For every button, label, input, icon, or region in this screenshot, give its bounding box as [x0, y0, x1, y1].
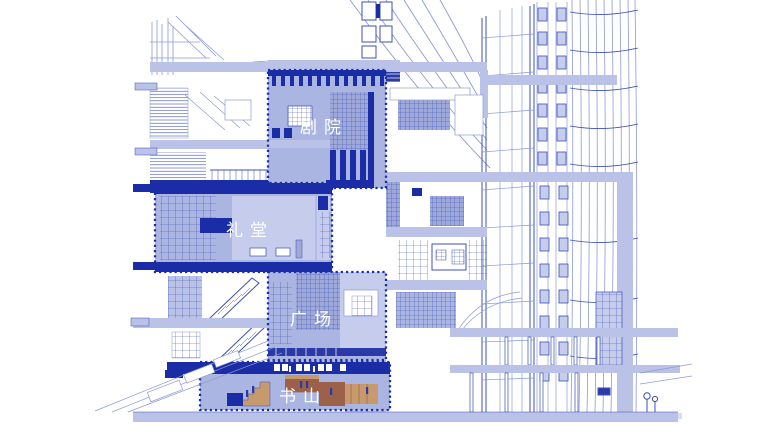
dark-service-box	[227, 393, 243, 406]
label-book-mountain: 书山	[279, 387, 327, 407]
label-plaza: 广场	[290, 310, 338, 330]
block-theater: 剧院	[268, 60, 400, 188]
block-auditorium: 礼堂	[155, 183, 332, 272]
label-theater: 剧院	[300, 118, 348, 138]
architectural-section-drawing: 剧院 礼堂 广场	[0, 0, 780, 439]
label-auditorium: 礼堂	[226, 221, 274, 241]
block-plaza: 广场	[268, 272, 386, 362]
section-axonometric-svg: 剧院 礼堂 广场	[0, 0, 780, 439]
tower-windows	[538, 8, 568, 381]
